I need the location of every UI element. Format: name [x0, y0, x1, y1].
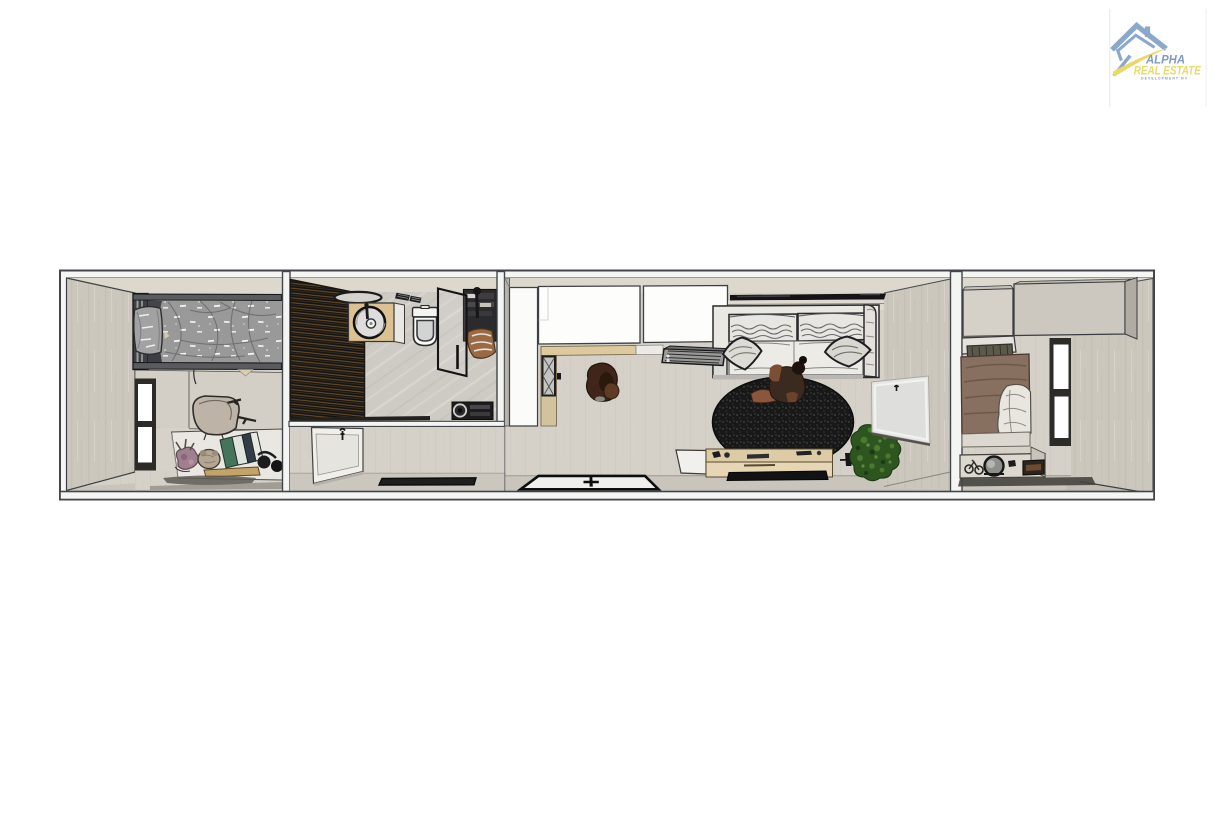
svg-text:DEVELOPMENT NV: DEVELOPMENT NV: [1141, 77, 1188, 81]
svg-text:ALPHA: ALPHA: [1145, 52, 1185, 66]
